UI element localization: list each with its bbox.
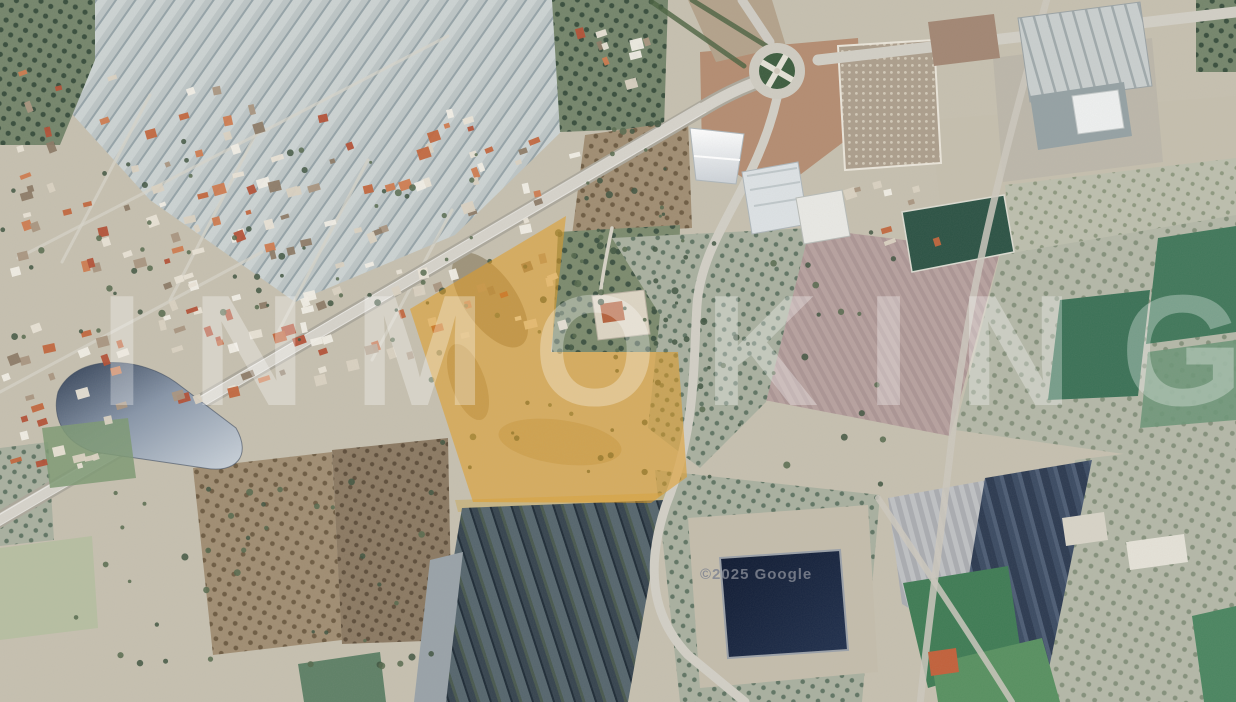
photo-grain: [0, 0, 1236, 702]
satellite-imagery: [0, 0, 1236, 702]
satellite-map-view[interactable]: INMOKING ©2025 Google: [0, 0, 1236, 702]
